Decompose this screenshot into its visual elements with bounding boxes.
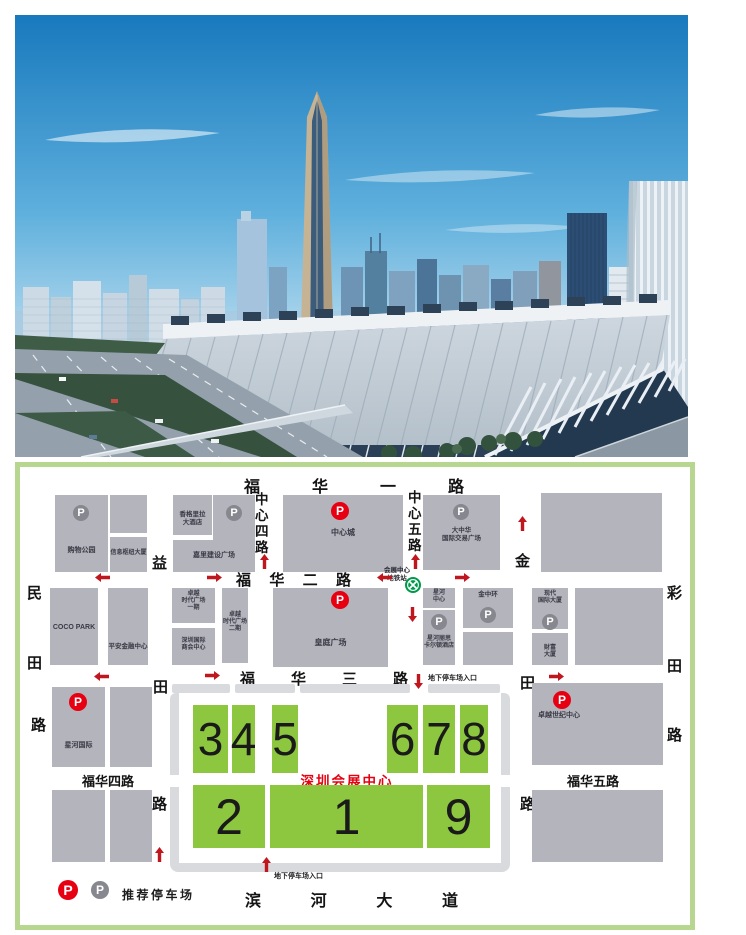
street-binhe-avenue: 滨河大道 xyxy=(245,887,458,911)
ring-road-left xyxy=(170,693,179,775)
block-excellence-century: P 卓越世纪中心 xyxy=(532,683,663,765)
skyline-photo xyxy=(15,15,688,457)
building-label: 大中华 国际交易广场 xyxy=(423,527,500,542)
parking-icon-gray: P xyxy=(542,614,558,630)
parking-icon-gray: P xyxy=(453,504,469,520)
building-label: 卓越世纪中心 xyxy=(538,712,580,720)
block-pingan-finance: 平安金融中心 xyxy=(108,588,148,665)
parking-icon-gray: P xyxy=(431,614,447,630)
block-unlabeled xyxy=(541,493,662,572)
street-zhongxin-5th-road: 中心五路 xyxy=(408,490,422,554)
hall-4: 4 xyxy=(232,705,255,773)
legend-label: 推荐停车场 xyxy=(122,886,195,903)
arrow-left-icon xyxy=(377,573,392,582)
block-unlabeled xyxy=(110,687,152,767)
ring-road-dash xyxy=(300,684,410,693)
parking-icon-red: P xyxy=(69,693,87,711)
building-label: 财富 大厦 xyxy=(532,645,568,659)
building-label: 星河丽思 卡尔顿酒店 xyxy=(423,636,455,650)
block-shangri-la-hotel: 香格里拉 大酒店 xyxy=(173,495,212,535)
block-unlabeled xyxy=(110,495,147,533)
block-unlabeled xyxy=(532,790,663,862)
street-mintian-road-char: 民 xyxy=(27,586,42,601)
block-kerry-plaza: 嘉里建设广场 xyxy=(173,540,255,572)
arrow-up-icon xyxy=(260,554,269,569)
building-label: 现代 国际大厦 xyxy=(532,591,568,605)
street-zhongxin-4th-road: 中心四路 xyxy=(255,492,269,556)
block-ritz-carlton: P 星河丽思 卡尔顿酒店 xyxy=(423,610,455,665)
hall-3: 3 xyxy=(193,705,228,773)
street-yitian-road-char: 益 xyxy=(152,556,167,571)
parking-icon-gray: P xyxy=(73,505,89,521)
hall-8: 8 xyxy=(460,705,488,773)
street-fuhua-5th-road: 福华五路 xyxy=(563,771,623,790)
metro-station-icon xyxy=(405,577,421,593)
hall-9: 9 xyxy=(427,785,490,848)
hall-2: 2 xyxy=(193,785,265,848)
hall-1: 1 xyxy=(270,785,423,848)
street-fuhua-1st-road: 福华一路 xyxy=(244,473,464,497)
arrow-left-icon xyxy=(95,573,110,582)
street-fuhua-2nd-road: 福华二路 xyxy=(236,569,351,590)
parking-icon-red: P xyxy=(331,591,349,609)
block-modern-intl: 现代 国际大厦 P xyxy=(532,588,568,629)
block-unlabeled xyxy=(463,632,513,665)
block-galaxy-center: 星河 中心 xyxy=(423,588,455,608)
building-label: 星河 中心 xyxy=(423,590,455,604)
block-coco-park: COCO PARK xyxy=(50,588,98,665)
legend-parking-icon-red: P xyxy=(58,880,78,900)
street-jintian-road-char: 金 xyxy=(515,554,530,569)
street-yitian-road-char: 路 xyxy=(152,797,167,812)
street-mintian-road-char: 路 xyxy=(31,718,46,733)
building-label: 星河国际 xyxy=(52,742,105,750)
building-label: 卓越 时代广场 一期 xyxy=(172,591,215,612)
arrow-up-icon xyxy=(411,554,420,569)
building-label: 平安金融中心 xyxy=(108,643,148,651)
building-label: 深圳国际 商会中心 xyxy=(172,638,215,652)
legend-parking-icon-gray: P xyxy=(91,881,109,899)
arrow-left-icon xyxy=(94,672,109,681)
building-label: 中心城 xyxy=(283,528,403,537)
arrow-right-icon xyxy=(455,573,470,582)
block-unlabeled xyxy=(110,790,152,862)
hall-5: 5 xyxy=(272,705,298,773)
block-unlabeled xyxy=(52,790,105,862)
block-central-city: P 中心城 xyxy=(283,495,403,572)
parking-entrance-label-bottom: 地下停车场入口 xyxy=(274,871,323,881)
convention-center-area-map: 福华一路 福华二路 福华三路 滨河大道 福华四路 福华五路 中心四路 中心五路 … xyxy=(15,462,695,930)
block-info-hub: 信息枢纽大厦 xyxy=(110,537,147,572)
building-label: 卓越 时代广场 二期 xyxy=(222,612,248,633)
building-label: 金中环 xyxy=(463,591,513,599)
street-caitian-road-char: 彩 xyxy=(667,586,682,601)
block-huangting-plaza: P 皇庭广场 xyxy=(273,588,388,667)
building-label: 购物公园 xyxy=(55,547,108,555)
arrow-up-icon xyxy=(155,847,164,862)
building-label: 香格里拉 大酒店 xyxy=(173,511,212,526)
ring-road-bottom xyxy=(170,863,510,872)
arrow-up-icon xyxy=(518,516,527,531)
parking-icon-red: P xyxy=(553,691,571,709)
arrow-right-icon xyxy=(205,671,220,680)
building-label: COCO PARK xyxy=(50,624,98,632)
building-label: 信息枢纽大厦 xyxy=(110,550,147,557)
arrow-right-icon xyxy=(549,672,564,681)
parking-entrance-label-top: 地下停车场入口 xyxy=(428,673,477,683)
building-label: 皇庭广场 xyxy=(273,638,388,647)
arrow-down-icon xyxy=(414,674,423,689)
block-chamber-commerce: 深圳国际 商会中心 xyxy=(172,628,215,665)
arrow-up-icon xyxy=(262,857,271,872)
arrow-down-icon xyxy=(408,607,417,622)
block-jinzhonghuan: 金中环 P xyxy=(463,588,513,628)
ring-road-dash xyxy=(428,684,500,693)
block-shopping-park: P 购物公园 xyxy=(55,495,108,572)
parking-icon-gray: P xyxy=(226,505,242,521)
block-galaxy-intl: P 星河国际 xyxy=(52,687,105,767)
ring-road-left xyxy=(170,787,179,863)
arrow-right-icon xyxy=(207,573,222,582)
parking-icon-gray: P xyxy=(480,607,496,623)
block-excellence-times-2: 卓越 时代广场 二期 xyxy=(222,588,248,663)
ring-road-right xyxy=(501,787,510,863)
map-canvas: 福华一路 福华二路 福华三路 滨河大道 福华四路 福华五路 中心四路 中心五路 … xyxy=(20,467,690,925)
block-unlabeled xyxy=(575,588,663,665)
street-yitian-road-char: 田 xyxy=(153,680,168,695)
street-mintian-road-char: 田 xyxy=(27,656,42,671)
street-caitian-road-char: 路 xyxy=(667,728,682,743)
ring-road-dash xyxy=(235,684,295,693)
block-greater-china: P 大中华 国际交易广场 xyxy=(423,495,500,570)
street-caitian-road-char: 田 xyxy=(667,659,682,674)
ring-road-right xyxy=(501,693,510,775)
ring-road-dash xyxy=(172,684,230,693)
block-excellence-times-1: 卓越 时代广场 一期 xyxy=(172,588,215,623)
hall-6: 6 xyxy=(387,705,418,773)
building-label: 嘉里建设广场 xyxy=(173,552,255,560)
block-fortune-tower: 财富 大厦 xyxy=(532,633,568,665)
street-fuhua-4th-road: 福华四路 xyxy=(78,771,138,790)
parking-icon-red: P xyxy=(331,502,349,520)
hall-7: 7 xyxy=(423,705,455,773)
